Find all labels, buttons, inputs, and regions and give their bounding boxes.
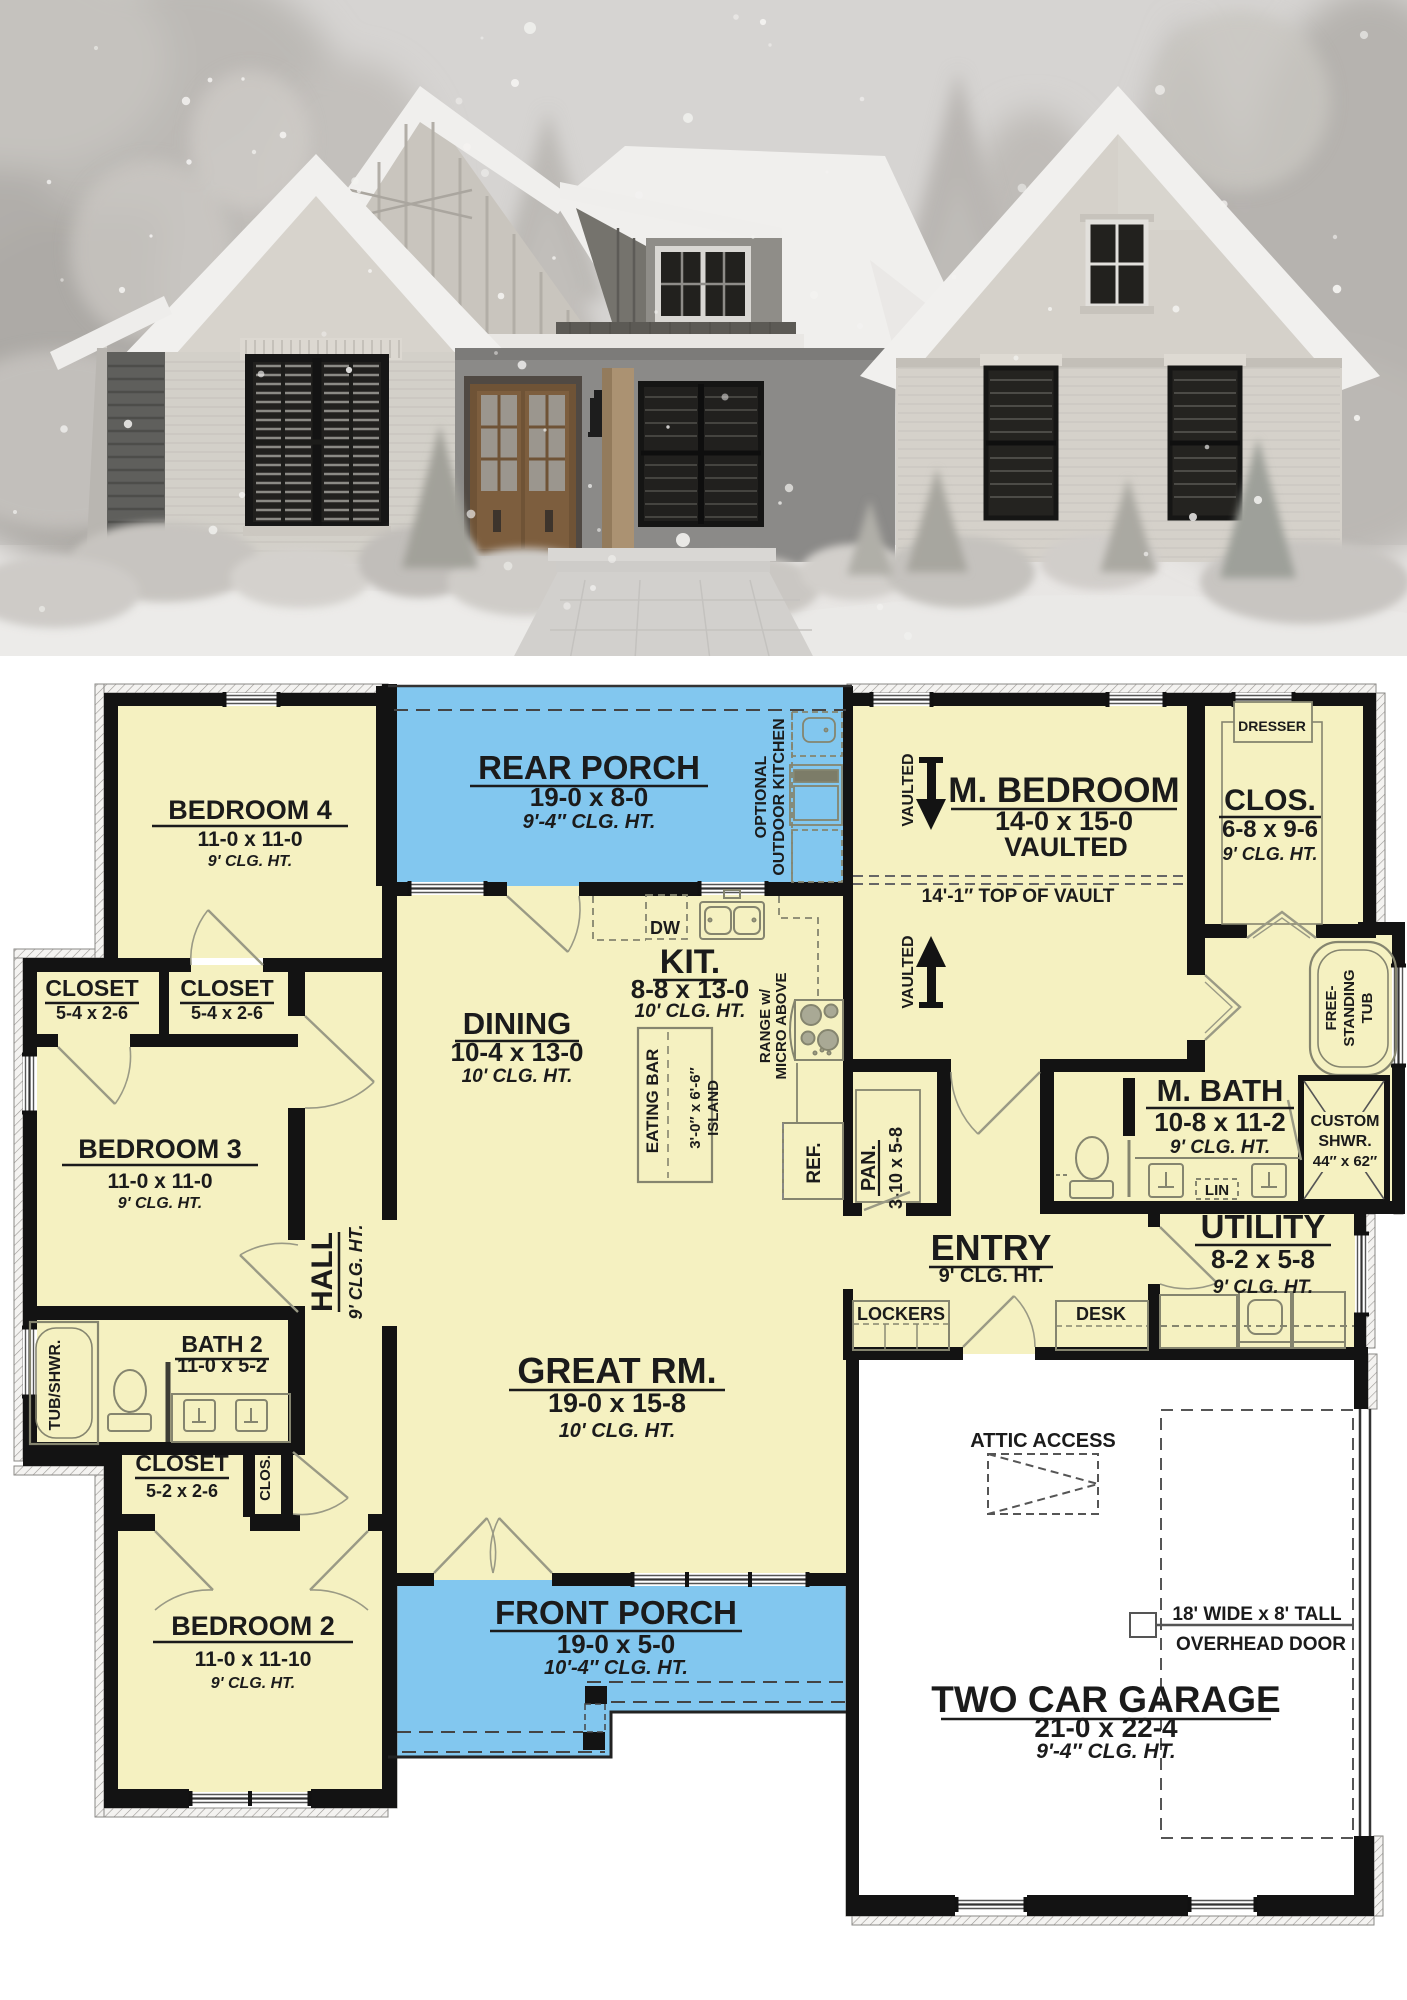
svg-text:11-0 x 11-0: 11-0 x 11-0 <box>197 828 302 851</box>
svg-text:6-8 x 9-6: 6-8 x 9-6 <box>1222 816 1318 843</box>
svg-text:10-4 x 13-0: 10-4 x 13-0 <box>451 1037 584 1067</box>
svg-text:LOCKERS: LOCKERS <box>857 1304 945 1324</box>
svg-text:LIN: LIN <box>1205 1182 1229 1199</box>
svg-text:CLOSET: CLOSET <box>180 975 273 1001</box>
svg-text:CLOS.: CLOS. <box>1224 784 1316 817</box>
svg-text:MICRO ABOVE: MICRO ABOVE <box>773 973 790 1080</box>
svg-text:DRESSER: DRESSER <box>1238 718 1306 734</box>
svg-text:CLOSET: CLOSET <box>45 975 138 1001</box>
svg-text:9' CLG. HT.: 9' CLG. HT. <box>1213 1277 1313 1298</box>
svg-text:TUB: TUB <box>1359 992 1376 1023</box>
svg-text:VAULTED: VAULTED <box>900 935 917 1008</box>
svg-text:5-4 x 2-6: 5-4 x 2-6 <box>56 1003 128 1023</box>
svg-text:8-8 x 13-0: 8-8 x 13-0 <box>631 974 750 1004</box>
svg-text:FRONT PORCH: FRONT PORCH <box>495 1594 737 1631</box>
svg-text:VAULTED: VAULTED <box>900 753 917 826</box>
svg-text:HALL: HALL <box>306 1232 339 1312</box>
svg-text:10'-4″ CLG. HT.: 10'-4″ CLG. HT. <box>544 1657 688 1679</box>
svg-text:44″ x 62″: 44″ x 62″ <box>1313 1153 1377 1170</box>
svg-text:9' CLG. HT.: 9' CLG. HT. <box>1223 844 1318 864</box>
svg-text:EATING BAR: EATING BAR <box>643 1049 662 1154</box>
svg-text:FREE-: FREE- <box>1323 985 1340 1030</box>
svg-text:REF.: REF. <box>804 1142 825 1183</box>
svg-text:BEDROOM 4: BEDROOM 4 <box>168 795 332 825</box>
svg-text:21-0 x 22-4: 21-0 x 22-4 <box>1034 1712 1178 1743</box>
svg-text:10' CLG. HT.: 10' CLG. HT. <box>462 1066 573 1087</box>
svg-text:10' CLG. HT.: 10' CLG. HT. <box>559 1420 676 1442</box>
svg-text:19-0 x 15-8: 19-0 x 15-8 <box>548 1388 686 1418</box>
svg-text:10' CLG. HT.: 10' CLG. HT. <box>635 1001 746 1022</box>
svg-text:5-4 x 2-6: 5-4 x 2-6 <box>191 1003 263 1023</box>
svg-text:CLOSET: CLOSET <box>135 1450 228 1476</box>
svg-text:9'-4″ CLG. HT.: 9'-4″ CLG. HT. <box>1036 1740 1176 1763</box>
svg-text:ATTIC ACCESS: ATTIC ACCESS <box>970 1430 1116 1452</box>
svg-text:DESK: DESK <box>1076 1304 1126 1324</box>
svg-text:8-2 x 5-8: 8-2 x 5-8 <box>1211 1244 1315 1274</box>
svg-text:3'-0″ x 6'-6″: 3'-0″ x 6'-6″ <box>687 1067 704 1149</box>
svg-text:OPTIONAL: OPTIONAL <box>753 755 770 838</box>
svg-text:M. BEDROOM: M. BEDROOM <box>948 771 1179 810</box>
svg-text:M. BATH: M. BATH <box>1157 1073 1284 1108</box>
svg-text:CLOS.: CLOS. <box>257 1455 274 1501</box>
svg-text:TUB/SHWR.: TUB/SHWR. <box>47 1340 64 1431</box>
svg-text:VAULTED: VAULTED <box>1004 832 1128 862</box>
svg-text:BATH 2: BATH 2 <box>181 1331 262 1357</box>
svg-text:BEDROOM 3: BEDROOM 3 <box>78 1134 242 1164</box>
svg-text:11-0 x 11-10: 11-0 x 11-10 <box>195 1648 312 1671</box>
svg-text:ISLAND: ISLAND <box>705 1080 722 1136</box>
svg-text:UTILITY: UTILITY <box>1201 1208 1326 1245</box>
svg-text:19-0 x 8-0: 19-0 x 8-0 <box>530 782 649 812</box>
svg-text:19-0 x 5-0: 19-0 x 5-0 <box>557 1629 676 1659</box>
svg-text:CUSTOM: CUSTOM <box>1310 1113 1379 1130</box>
svg-text:OUTDOOR KITCHEN: OUTDOOR KITCHEN <box>771 718 788 875</box>
svg-text:18' WIDE x 8' TALL: 18' WIDE x 8' TALL <box>1172 1604 1342 1625</box>
svg-text:14'-1″ TOP OF VAULT: 14'-1″ TOP OF VAULT <box>922 886 1115 907</box>
svg-text:11-0 x 5-2: 11-0 x 5-2 <box>177 1355 267 1377</box>
svg-text:BEDROOM 2: BEDROOM 2 <box>171 1611 335 1641</box>
svg-text:9' CLG. HT.: 9' CLG. HT. <box>1170 1137 1270 1158</box>
svg-text:9' CLG. HT.: 9' CLG. HT. <box>346 1225 366 1320</box>
svg-text:GREAT RM.: GREAT RM. <box>517 1350 716 1391</box>
svg-text:DINING: DINING <box>463 1006 572 1041</box>
svg-text:5-2 x 2-6: 5-2 x 2-6 <box>146 1481 218 1501</box>
svg-text:SHWR.: SHWR. <box>1318 1133 1371 1150</box>
svg-text:OVERHEAD DOOR: OVERHEAD DOOR <box>1176 1634 1346 1655</box>
svg-text:9'-4″ CLG. HT.: 9'-4″ CLG. HT. <box>523 811 656 833</box>
svg-text:11-0 x 11-0: 11-0 x 11-0 <box>107 1170 212 1193</box>
svg-text:9' CLG. HT.: 9' CLG. HT. <box>208 853 292 870</box>
svg-text:STANDING: STANDING <box>1341 969 1358 1046</box>
svg-text:9' CLG. HT.: 9' CLG. HT. <box>118 1195 202 1212</box>
svg-text:RANGE w/: RANGE w/ <box>757 988 774 1063</box>
svg-text:9' CLG. HT.: 9' CLG. HT. <box>939 1265 1044 1287</box>
svg-text:REAR PORCH: REAR PORCH <box>478 749 700 786</box>
svg-text:PAN.: PAN. <box>858 1145 880 1191</box>
svg-text:9' CLG. HT.: 9' CLG. HT. <box>211 1675 295 1692</box>
svg-text:10-8 x 11-2: 10-8 x 11-2 <box>1154 1107 1286 1137</box>
svg-text:DW: DW <box>650 918 680 938</box>
svg-text:ENTRY: ENTRY <box>931 1227 1052 1268</box>
